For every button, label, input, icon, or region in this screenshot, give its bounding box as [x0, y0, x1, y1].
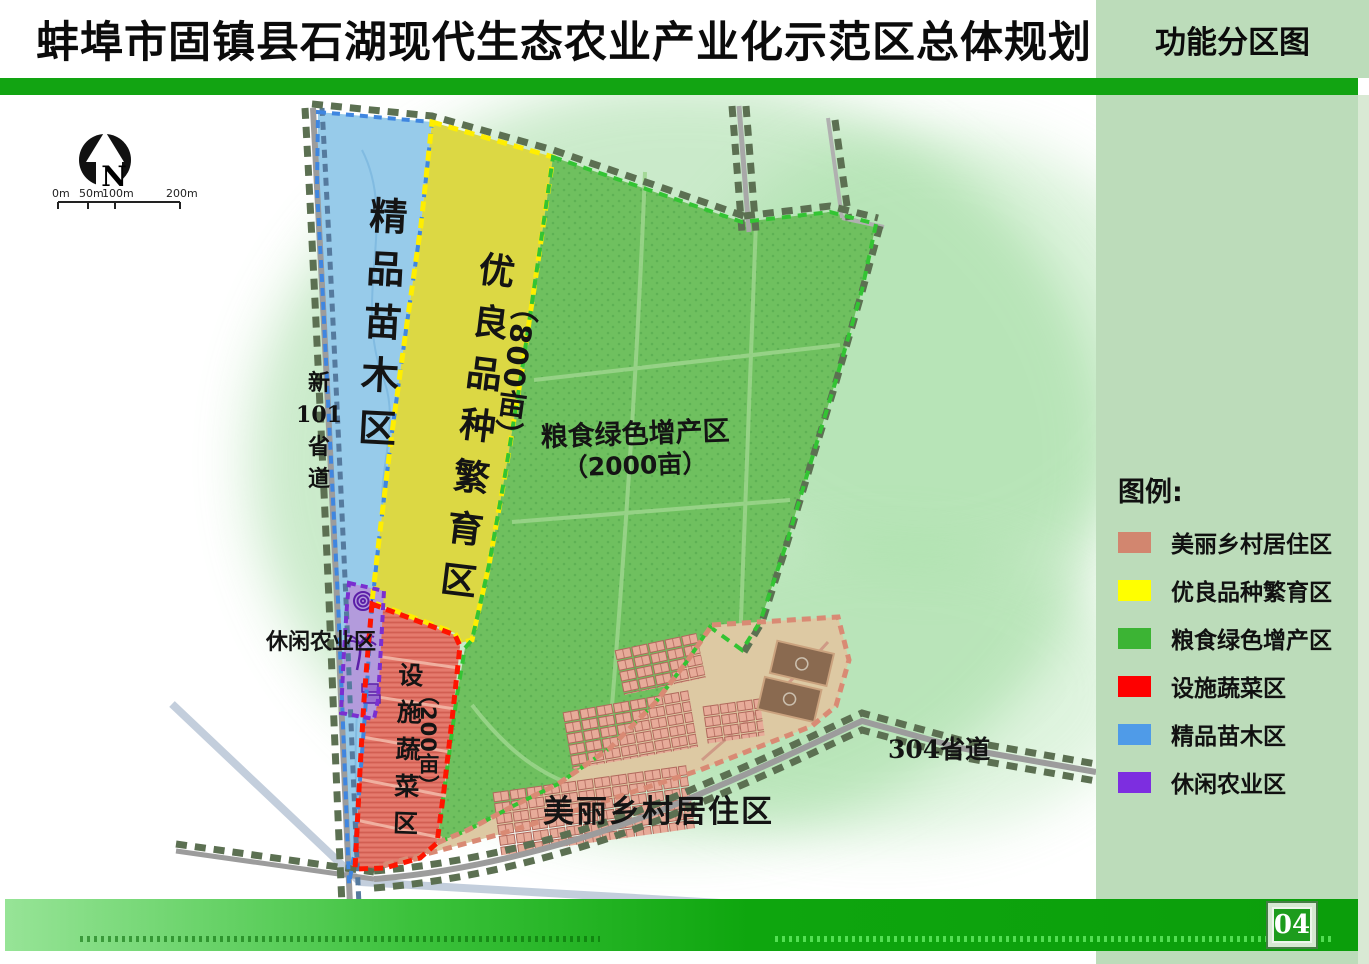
- road-label-304: 304省道: [888, 730, 990, 766]
- road101-prefix: 新: [308, 368, 330, 400]
- scale-100: 100m: [102, 187, 134, 200]
- legend-swatch-grain: [1118, 628, 1151, 649]
- legend-label-leisure: 休闲农业区: [1171, 765, 1286, 799]
- page: N 0m 50m 100m 200m 精品苗木区 优良品种繁育区 （800亩） …: [0, 0, 1369, 964]
- scale-0: 0m: [52, 187, 70, 200]
- legend-item-seedling: 精品苗木区: [1118, 717, 1332, 751]
- zone-label-village: 美丽乡村居住区: [543, 786, 774, 831]
- page-number: 04: [1274, 910, 1310, 940]
- page-number-box: 04: [1266, 901, 1318, 949]
- watermark-ticks-left: [80, 936, 600, 942]
- legend-item-vegetable: 设施蔬菜区: [1118, 669, 1332, 703]
- legend-label-vegetable: 设施蔬菜区: [1171, 669, 1286, 703]
- legend-label-grain: 粮食绿色增产区: [1171, 621, 1332, 655]
- sidebar-edge-strip: [1358, 95, 1369, 964]
- legend-swatch-village: [1118, 532, 1151, 553]
- legend-swatch-leisure: [1118, 772, 1151, 793]
- legend-item-leisure: 休闲农业区: [1118, 765, 1332, 799]
- legend-label-village: 美丽乡村居住区: [1171, 525, 1332, 559]
- legend-swatch-seedling: [1118, 724, 1151, 745]
- header: 蚌埠市固镇县石湖现代生态农业产业化示范区总体规划 功能分区图: [0, 0, 1369, 78]
- legend-item-breeding: 优良品种繁育区: [1118, 573, 1332, 607]
- legend-item-village: 美丽乡村居住区: [1118, 525, 1332, 559]
- legend: 图例: 美丽乡村居住区 优良品种繁育区 粮食绿色增产区 设施蔬菜区 精品苗木区 …: [1118, 470, 1332, 799]
- north-arrow: N: [79, 131, 131, 193]
- legend-item-grain: 粮食绿色增产区: [1118, 621, 1332, 655]
- legend-swatch-breeding: [1118, 580, 1151, 601]
- header-tab: 功能分区图: [1096, 0, 1369, 78]
- legend-label-breeding: 优良品种繁育区: [1171, 573, 1332, 607]
- scale-labels: 0m 50m 100m 200m: [52, 187, 198, 200]
- road101-number: 101: [296, 400, 342, 432]
- scale-200: 200m: [166, 187, 198, 200]
- scale-bar: [58, 202, 180, 209]
- road-label-101: 新 101 省 道: [301, 368, 337, 496]
- header-tab-label: 功能分区图: [1155, 17, 1310, 62]
- watermark-ticks-right: [775, 936, 1335, 942]
- top-green-bar: [0, 78, 1358, 95]
- page-number-inner: 04: [1272, 907, 1312, 943]
- page-title: 蚌埠市固镇县石湖现代生态农业产业化示范区总体规划: [36, 8, 1092, 70]
- bottom-green-bar: [5, 899, 1358, 951]
- zone-area-vegetable: （200亩）: [413, 684, 443, 797]
- road101-suffix-1: 省 道: [308, 432, 330, 496]
- legend-label-seedling: 精品苗木区: [1171, 717, 1286, 751]
- legend-swatch-vegetable: [1118, 676, 1151, 697]
- legend-title: 图例:: [1118, 470, 1332, 509]
- scale-50: 50m: [79, 187, 104, 200]
- zone-label-leisure: 休闲农业区: [266, 624, 376, 656]
